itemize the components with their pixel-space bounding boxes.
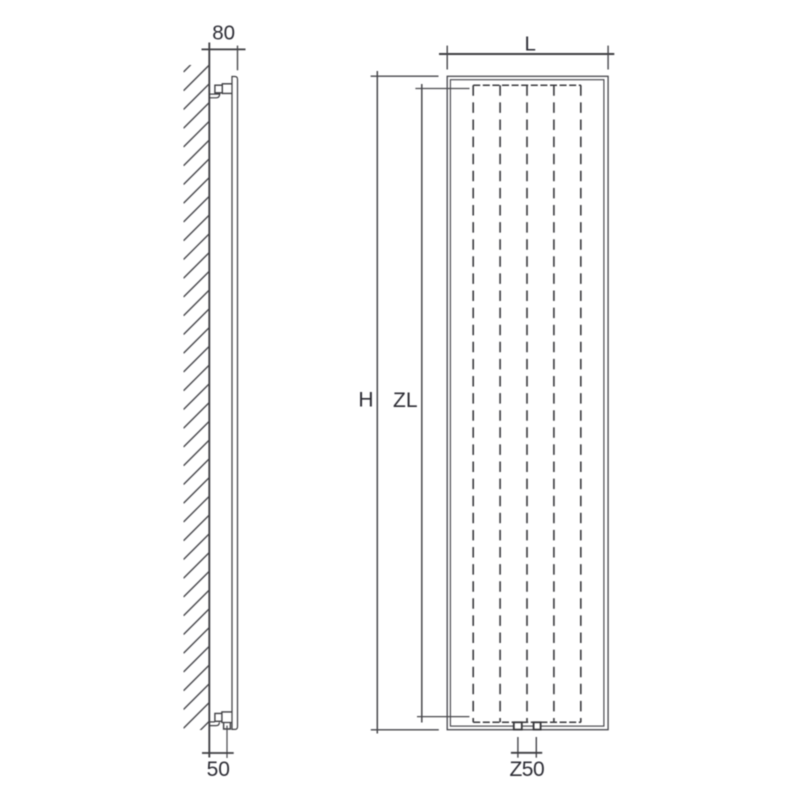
svg-text:Z50: Z50	[509, 758, 544, 781]
svg-text:H: H	[358, 389, 373, 412]
svg-text:80: 80	[212, 22, 235, 45]
svg-text:50: 50	[207, 758, 230, 781]
svg-text:ZL: ZL	[393, 389, 418, 412]
svg-text:L: L	[524, 33, 535, 56]
